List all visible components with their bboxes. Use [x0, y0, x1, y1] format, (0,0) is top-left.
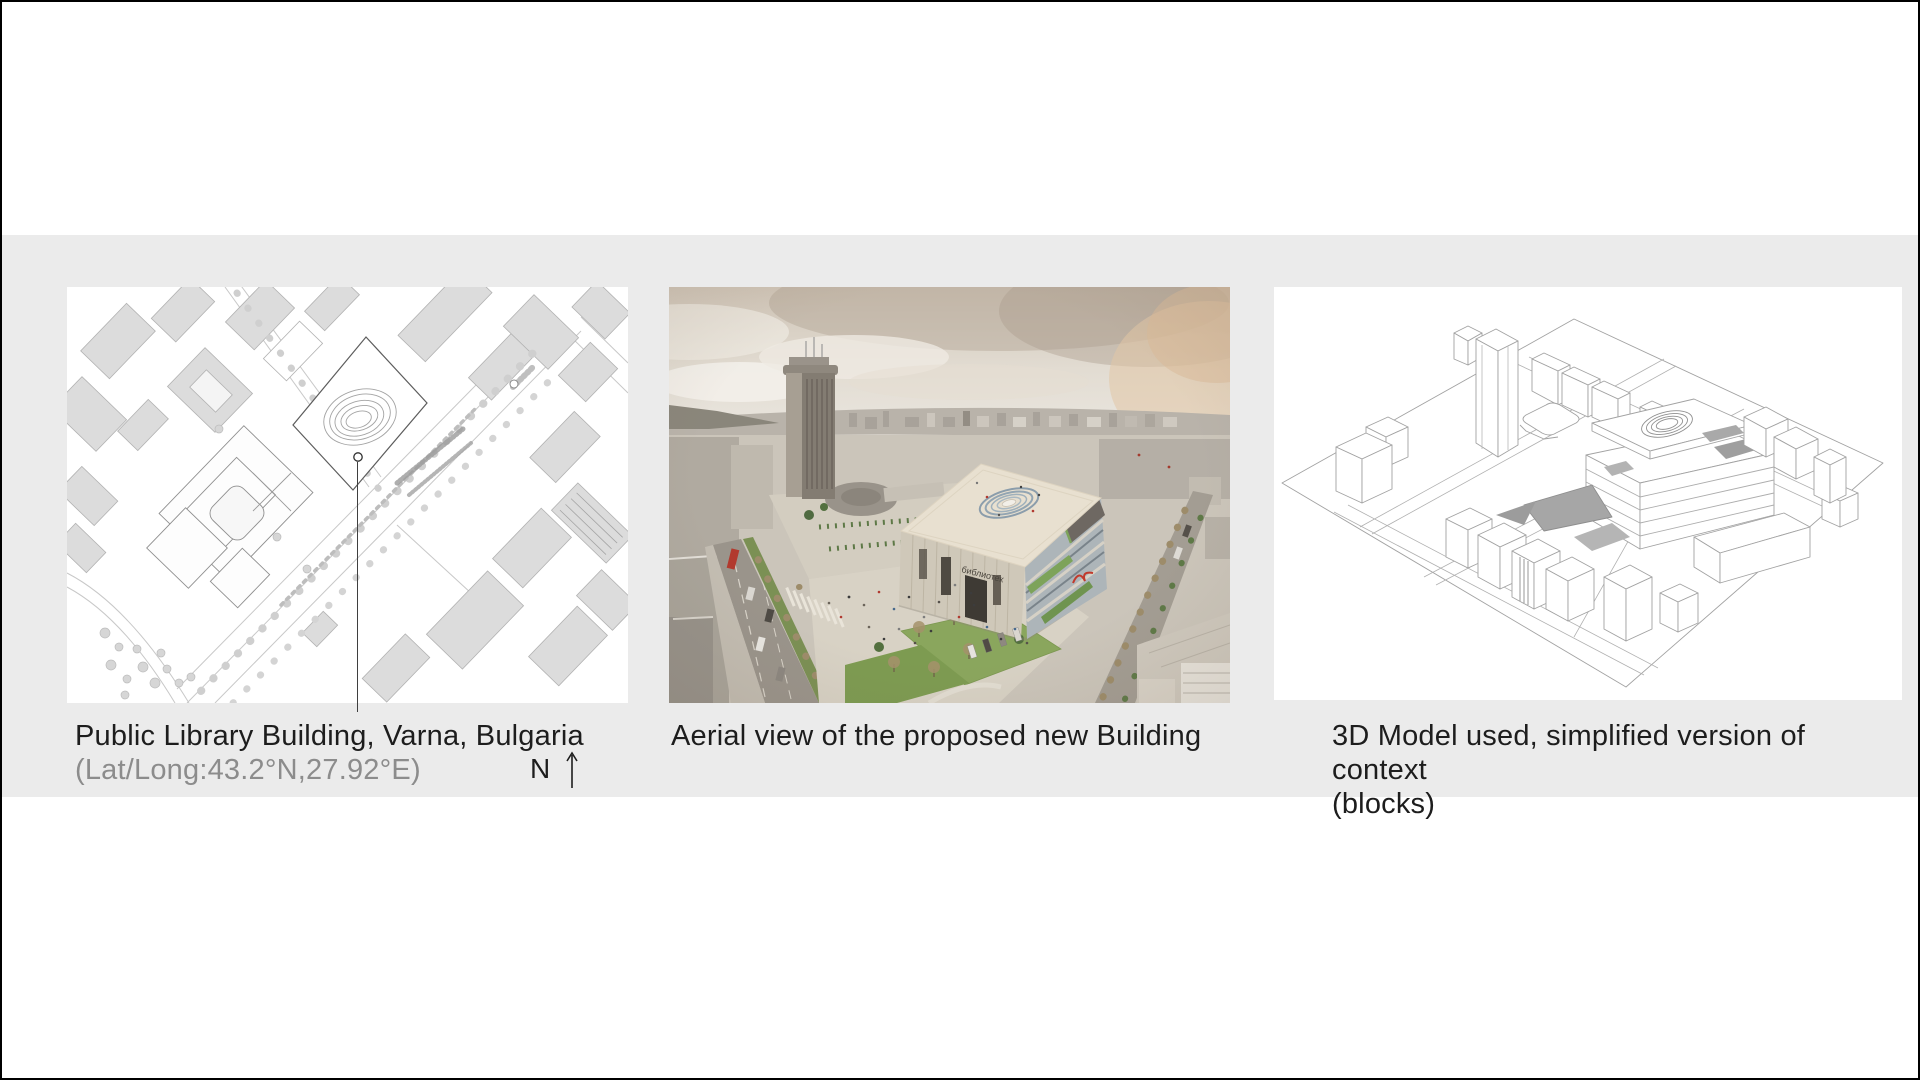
existing-complex [147, 426, 313, 608]
north-label: N [530, 750, 550, 788]
north-indicator: N [530, 750, 580, 790]
site-plan-title: Public Library Building, Varna, Bulgaria [75, 719, 615, 753]
aerial-caption: Aerial view of the proposed new Building [671, 719, 1231, 753]
road-symbol [510, 380, 518, 388]
site-plan-svg [67, 287, 628, 703]
vignette [669, 287, 1230, 703]
site-marker-circle [354, 453, 362, 461]
slide: библиотек [0, 0, 1920, 1080]
site-plan-figure [67, 287, 628, 703]
aerial-view-svg: библиотек [669, 287, 1230, 703]
model-figure [1274, 287, 1902, 700]
aerial-view-figure: библиотек [669, 287, 1230, 703]
site-boundary [293, 337, 427, 490]
wireframe-scene [1282, 319, 1883, 687]
model-caption-line1: 3D Model used, simplified version of con… [1332, 719, 1892, 787]
model-svg [1274, 287, 1902, 700]
site-marker-leader-line [357, 462, 358, 712]
north-arrow-icon [564, 750, 580, 790]
model-caption-line2: (blocks) [1332, 787, 1892, 821]
model-caption: 3D Model used, simplified version of con… [1332, 719, 1892, 821]
plan-buildings [67, 287, 628, 702]
